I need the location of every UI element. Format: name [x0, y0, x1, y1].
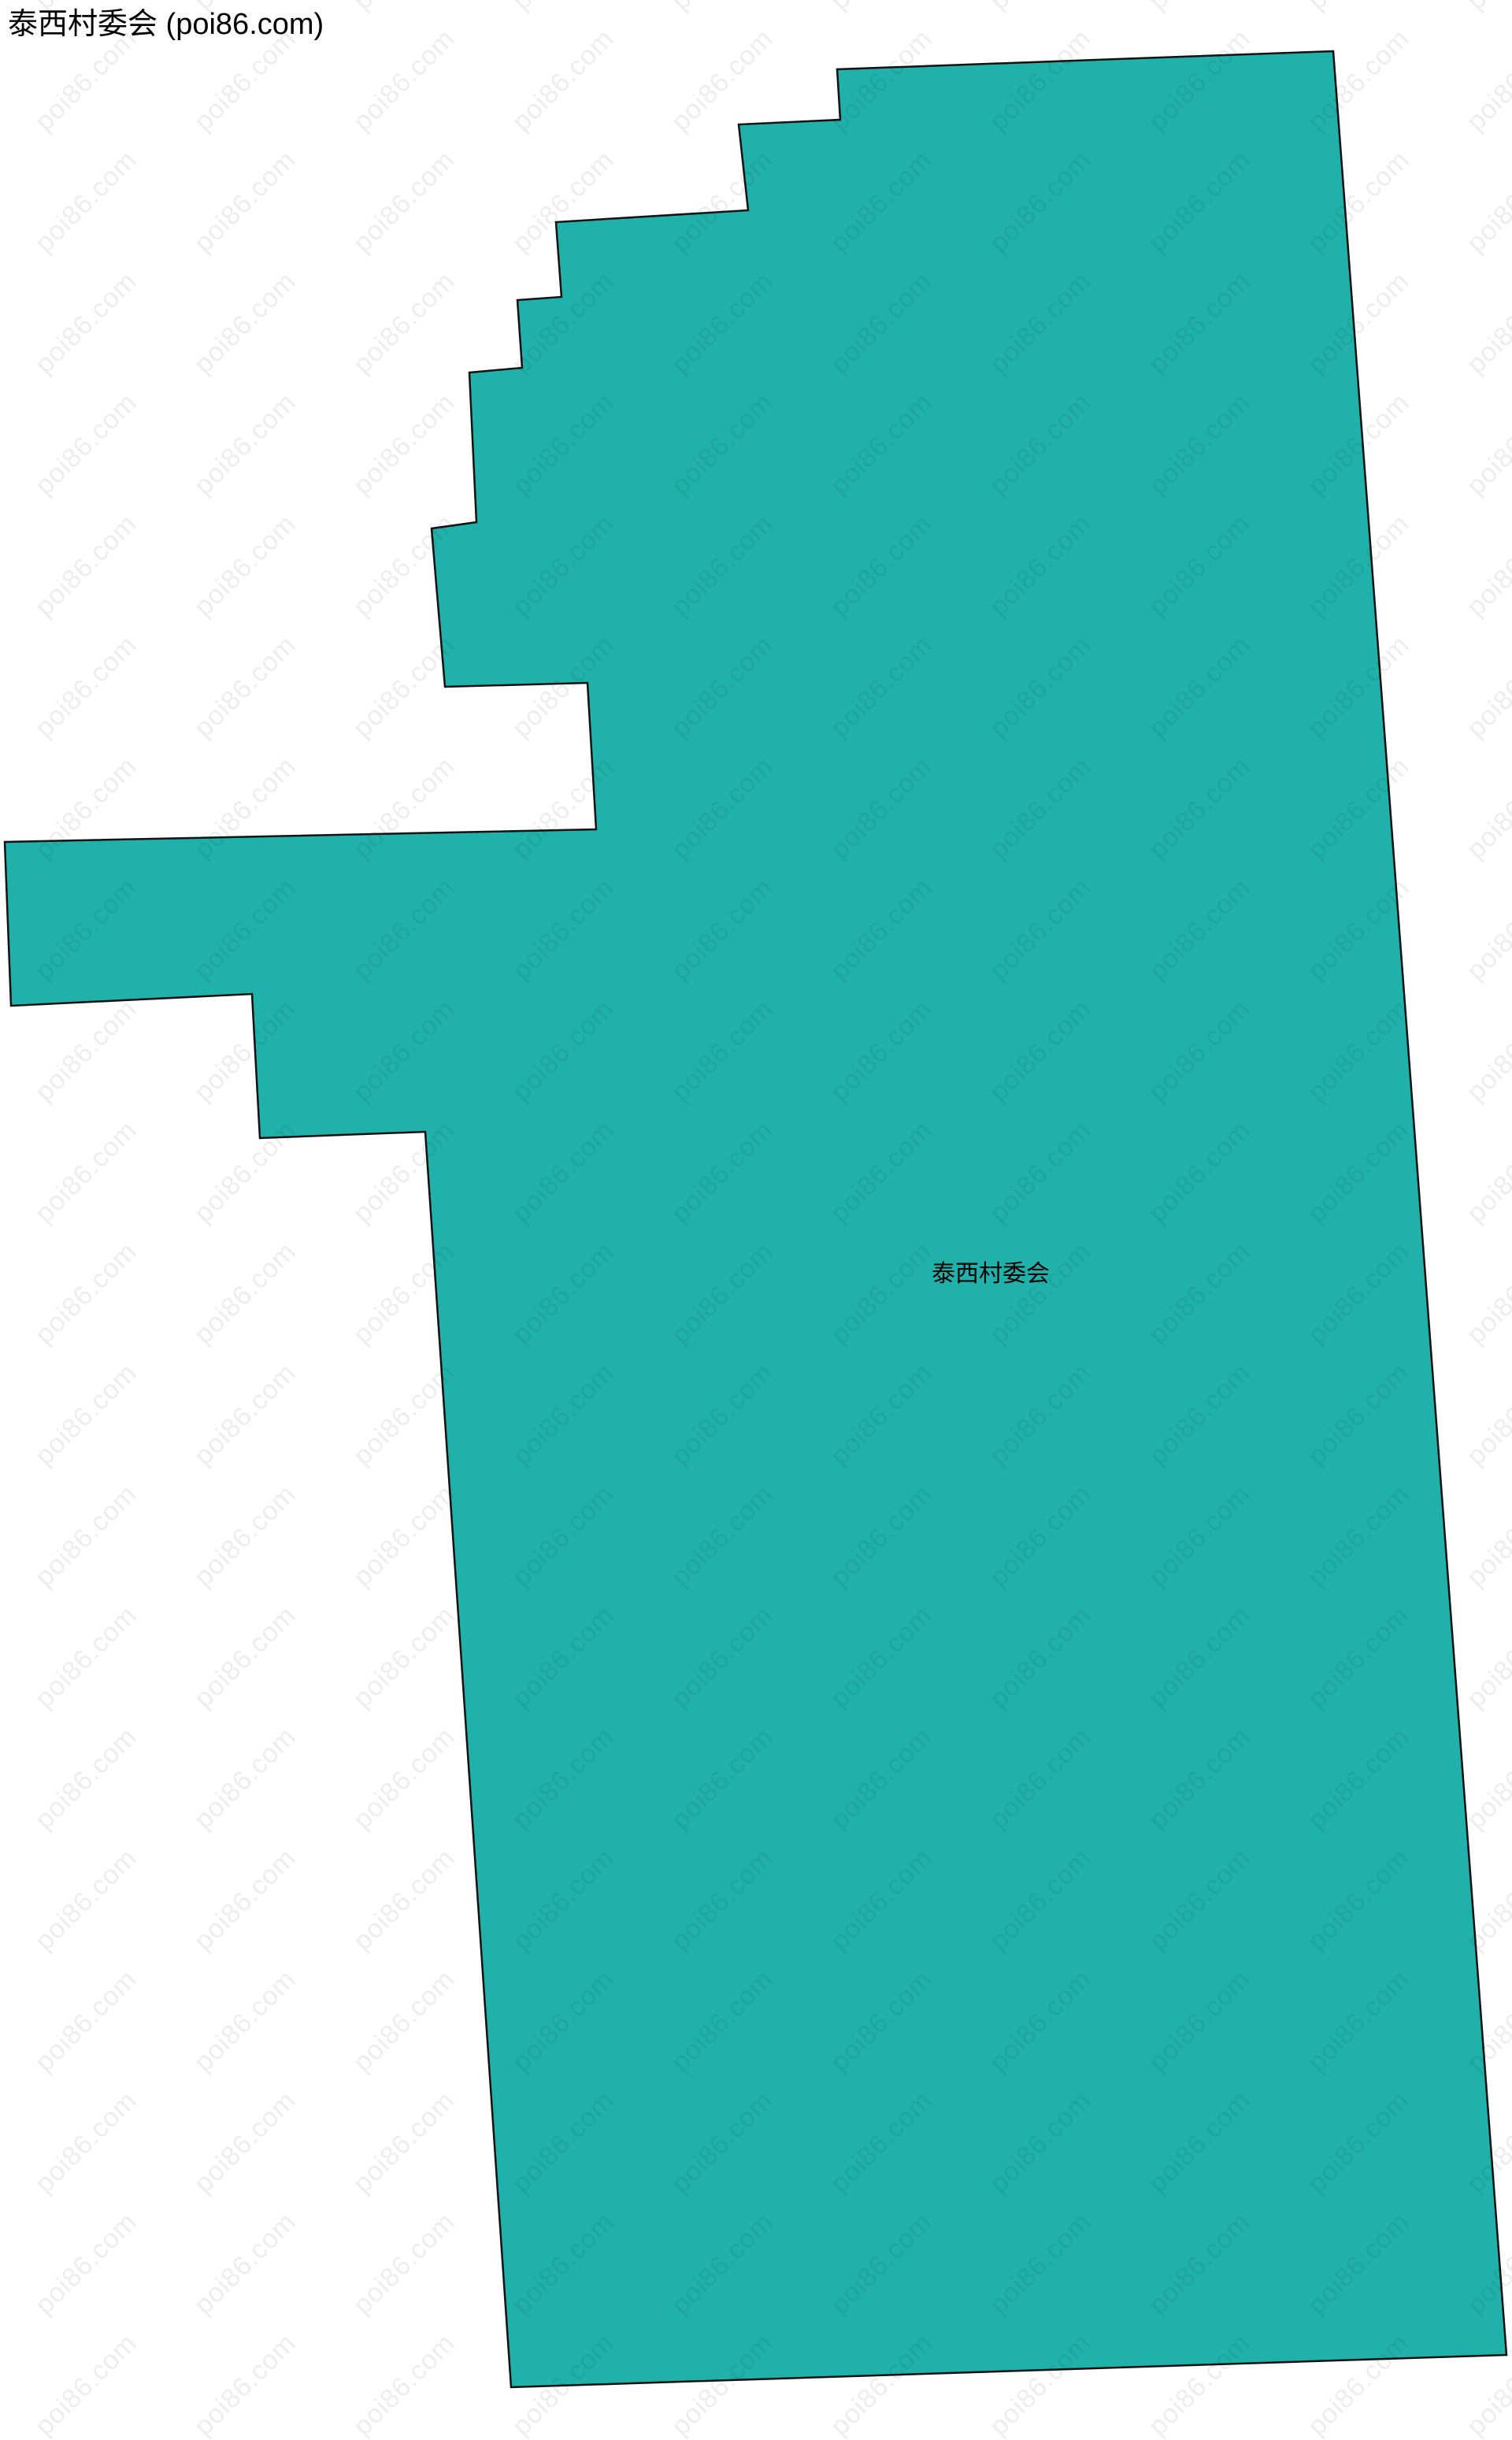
region-label: 泰西村委会 [932, 1260, 1050, 1289]
region-polygon [5, 51, 1506, 2387]
map-canvas [0, 0, 1512, 2440]
map-stage: poi86.compoi86.compoi86.compoi86.compoi8… [0, 0, 1512, 2440]
page-title: 泰西村委会 (poi86.com) [8, 5, 324, 44]
